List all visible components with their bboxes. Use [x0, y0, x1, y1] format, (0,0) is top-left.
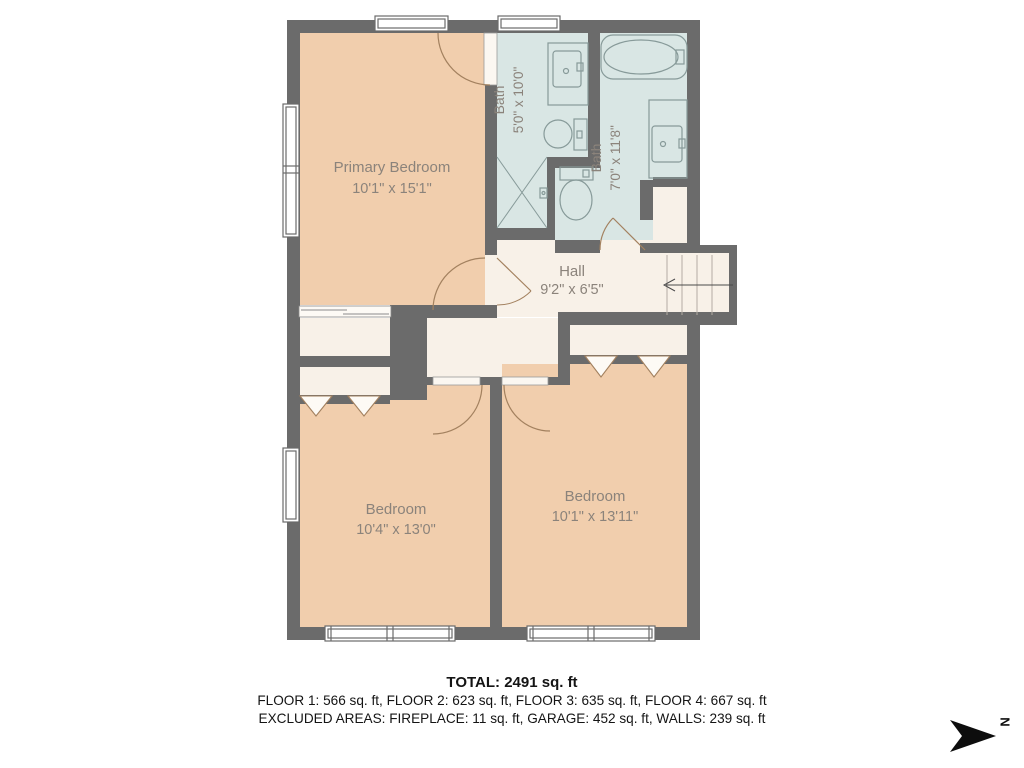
linen-closet-floor — [653, 187, 687, 243]
wall-linen-left — [640, 180, 653, 220]
floor-areas-text: FLOOR 1: 566 sq. ft, FLOOR 2: 623 sq. ft… — [0, 692, 1024, 710]
wall-bath2-bottom — [555, 240, 600, 253]
bath2-dims: 7'0" x 11'8" — [608, 125, 623, 191]
right-bedroom-dims: 10'1" x 13'11" — [552, 509, 639, 525]
wall-right-door-jamb — [548, 377, 570, 385]
hall-dims: 9'2" x 6'5" — [540, 282, 603, 298]
wall-between-bedrooms — [490, 377, 502, 627]
primary-bedroom-label: Primary Bedroom — [334, 159, 451, 176]
primary-closet-floor — [300, 318, 390, 358]
hall-label: Hall — [559, 263, 585, 280]
wall-right-lower — [687, 325, 700, 640]
window-left-bedroom — [283, 448, 299, 522]
floorplan-page: Primary Bedroom 10'1" x 15'1" Bath 5'0" … — [0, 0, 1024, 768]
area-summary: TOTAL: 2491 sq. ft FLOOR 1: 566 sq. ft, … — [0, 674, 1024, 728]
wall-shower-bottom — [485, 228, 555, 240]
primary-closet-sliding-door — [299, 306, 391, 317]
bath1-dims: 5'0" x 10'0" — [511, 67, 526, 134]
floorplan-drawing: Primary Bedroom 10'1" x 15'1" Bath 5'0" … — [0, 0, 1024, 768]
wall-closets-divider — [287, 356, 390, 367]
wall-top — [287, 20, 700, 33]
wall-primary-bottom — [390, 305, 497, 318]
excluded-areas-text: EXCLUDED AREAS: FIREPLACE: 11 sq. ft, GA… — [0, 710, 1024, 728]
bath1-label: Bath — [491, 86, 507, 115]
wall-shower-right — [547, 168, 555, 228]
wall-vestibule-right — [558, 317, 570, 377]
wall-left-door-jamb — [427, 377, 433, 385]
total-area-text: TOTAL: 2491 sq. ft — [0, 674, 1024, 692]
right-bedroom-label: Bedroom — [565, 488, 626, 505]
left-bedroom-dims: 10'4" x 13'0" — [356, 522, 436, 538]
left-bedroom-closet-floor — [300, 367, 390, 397]
right-bedroom-closet-floor — [570, 325, 687, 358]
wall-mid-block — [390, 318, 427, 400]
window-left-primary — [283, 104, 299, 237]
bath2-label: Bath — [588, 144, 604, 173]
window-bottom-left-bedroom — [325, 626, 455, 641]
wall-center-door-jamb — [480, 377, 490, 385]
wall-between-baths — [588, 33, 600, 157]
wall-linen-bottom — [640, 243, 700, 253]
wall-mid-right-band — [558, 312, 737, 325]
wall-right-upper — [687, 20, 700, 245]
window-top-primary — [375, 16, 448, 31]
left-bedroom-label: Bedroom — [366, 501, 427, 518]
window-bottom-right-bedroom — [527, 626, 655, 641]
primary-bedroom-dims: 10'1" x 15'1" — [352, 181, 432, 197]
window-top-bath1 — [498, 16, 560, 31]
